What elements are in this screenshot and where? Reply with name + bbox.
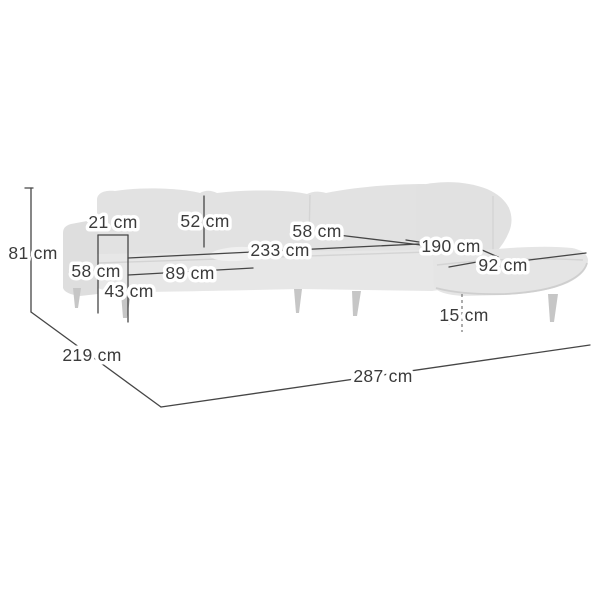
dim-label-chaise-length: 190 cm xyxy=(421,236,480,256)
sofa-leg-chaise xyxy=(548,294,558,322)
dim-label-armrest-width: 21 cm xyxy=(88,212,137,232)
dim-label-seating-width: 233 cm xyxy=(250,240,309,260)
dim-label-seat-height: 43 cm xyxy=(104,281,153,301)
dim-label-leg-height: 15 cm xyxy=(439,305,488,325)
dim-label-corner-seat-depth: 58 cm xyxy=(292,221,341,241)
dim-label-chaise-width: 92 cm xyxy=(478,255,527,275)
dim-label-overall-depth: 219 cm xyxy=(62,345,121,365)
dim-label-seat-depth: 89 cm xyxy=(165,263,214,283)
dim-label-overall-width: 287 cm xyxy=(353,366,412,386)
sofa-leg-center xyxy=(294,289,302,313)
sofa-leg-left-rear xyxy=(73,288,81,308)
sofa-leg-corner xyxy=(352,291,361,316)
dim-label-armrest-height: 58 cm xyxy=(71,261,120,281)
dim-label-overall-height: 81 cm xyxy=(8,243,57,263)
sofa-left-armrest xyxy=(63,221,98,296)
diagram-canvas: 81 cm 21 cm 52 cm 58 cm 233 cm 190 cm 92… xyxy=(0,0,600,600)
dim-label-backrest-height: 52 cm xyxy=(180,211,229,231)
sofa-dimension-diagram: 81 cm 21 cm 52 cm 58 cm 233 cm 190 cm 92… xyxy=(0,0,600,600)
sofa-illustration xyxy=(63,182,588,322)
